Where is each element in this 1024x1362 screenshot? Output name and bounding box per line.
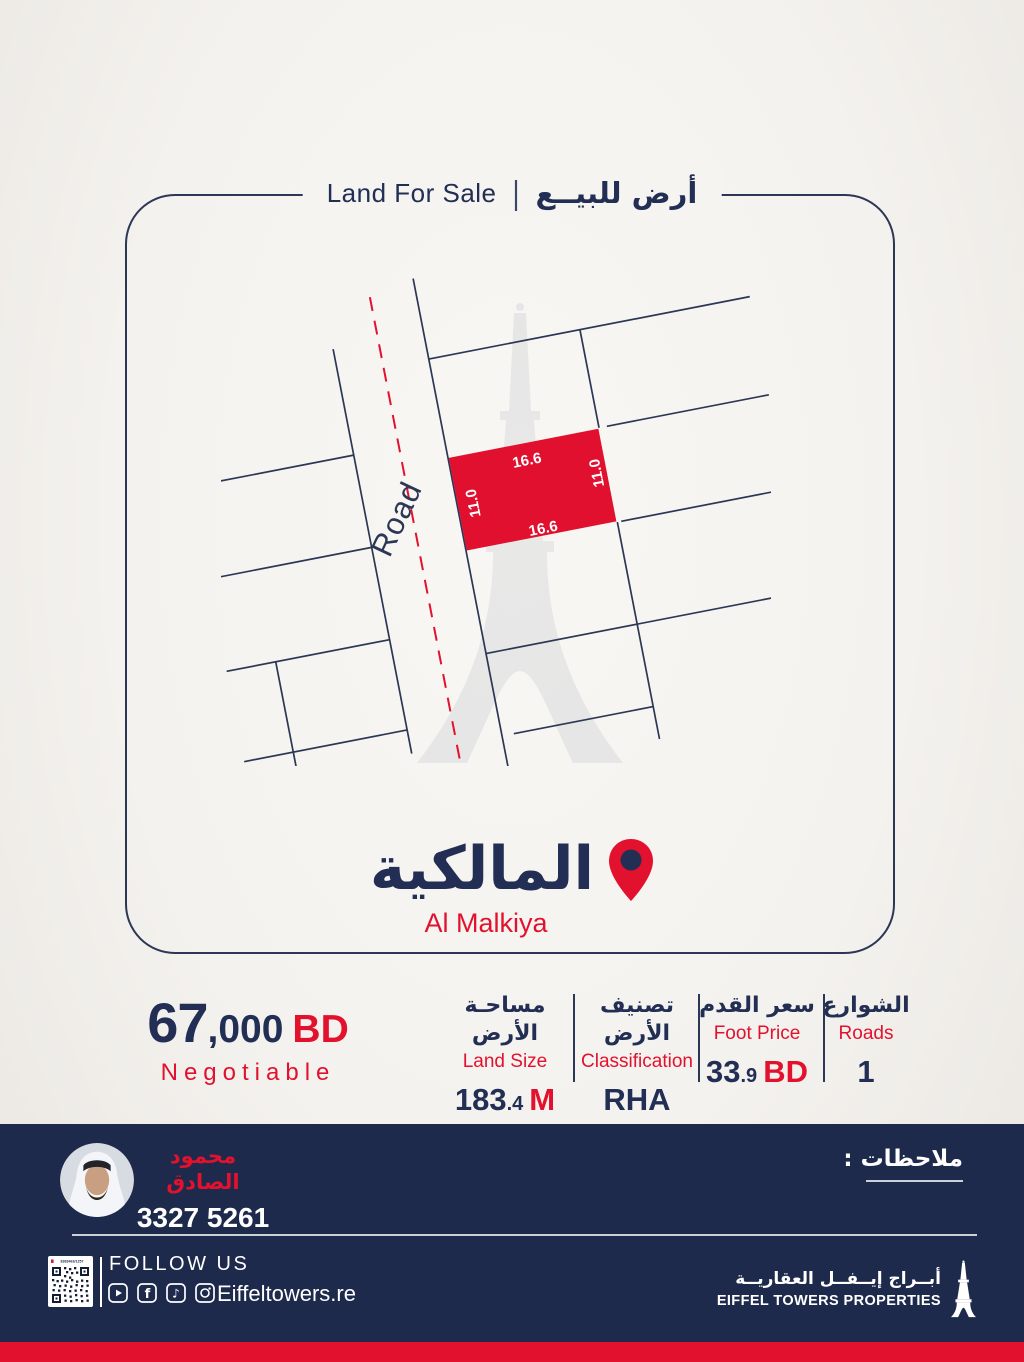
- page-title: Land For Sale | أرض للبيــع: [303, 170, 722, 216]
- title-arabic: أرض للبيــع: [536, 176, 698, 210]
- stat-value: 1: [821, 1055, 911, 1093]
- stat-foot-price: سعر القدم Foot Price 33.9BD: [697, 992, 817, 1093]
- brand-name-english: EIFFEL TOWERS PROPERTIES: [717, 1293, 941, 1309]
- stat-label-arabic: الشوارع: [821, 992, 911, 1020]
- agent-photo: [60, 1143, 134, 1217]
- location-row: المالكية: [0, 834, 1024, 904]
- bottom-red-strip: [0, 1342, 1024, 1362]
- stat-value: 33.9BD: [697, 1055, 817, 1093]
- price-amount: 67: [147, 990, 207, 1055]
- title-english: Land For Sale: [327, 178, 497, 209]
- stat-land-size: مساحـة الأرض Land Size 183.4M: [435, 992, 575, 1121]
- location-name-arabic: المالكية: [370, 834, 594, 904]
- price-line: 67 ,000 BD: [140, 990, 356, 1055]
- social-icons: f ♪: [108, 1283, 215, 1303]
- stat-roads: الشوارع Roads 1: [821, 992, 911, 1093]
- negotiable-label: Negotiable: [140, 1059, 356, 1087]
- website-link[interactable]: Eiffeltowers.re: [217, 1281, 356, 1307]
- stat-label-english: Foot Price: [697, 1023, 817, 1045]
- agent-phone[interactable]: 3327 5261: [134, 1202, 272, 1234]
- notes-label: ملاحظات :: [843, 1146, 963, 1172]
- eiffel-tower-icon: [950, 1260, 977, 1318]
- brand-logo: أبــراج إيــفــل العقاريــة EIFFEL TOWER…: [717, 1260, 977, 1318]
- notes-block: ملاحظات :: [843, 1146, 963, 1182]
- stat-label-arabic: مساحـة الأرض: [435, 992, 575, 1048]
- stat-value: RHA: [577, 1083, 697, 1121]
- location-name-english: Al Malkiya: [0, 908, 998, 939]
- title-separator: |: [513, 174, 520, 213]
- follow-us-label: FOLLOW US: [109, 1253, 249, 1276]
- stat-value: 183.4M: [435, 1083, 575, 1121]
- instagram-icon[interactable]: [195, 1283, 215, 1303]
- facebook-icon[interactable]: f: [137, 1283, 157, 1303]
- stat-label-english: Classification: [577, 1051, 697, 1073]
- contact-band: محمود الصادق 3327 5261 ملاحظات : 8383463…: [0, 1124, 1024, 1362]
- agent-info: محمود الصادق 3327 5261: [134, 1143, 272, 1234]
- svg-text:f: f: [145, 1287, 151, 1302]
- plot-map: 16.6 16.6 11.0 11.0: [221, 261, 771, 766]
- band-separator-line: [72, 1234, 977, 1236]
- price-thousands: ,000: [208, 1008, 284, 1052]
- price-currency: BD: [292, 1008, 348, 1052]
- brand-text: أبــراج إيــفــل العقاريــة EIFFEL TOWER…: [717, 1269, 941, 1309]
- location-pin-icon: [608, 838, 654, 902]
- stat-divider: [573, 994, 575, 1082]
- youtube-icon[interactable]: [108, 1283, 128, 1303]
- stat-label-arabic: تصنيف الأرض: [577, 992, 697, 1048]
- agent-name: محمود الصادق: [134, 1143, 272, 1195]
- stat-classification: تصنيف الأرض Classification RHA: [577, 992, 697, 1121]
- notes-underline: [866, 1180, 963, 1182]
- flyer-canvas: Land For Sale | أرض للبيــع: [0, 0, 1024, 1362]
- footer-divider-line: [100, 1257, 102, 1307]
- stat-label-arabic: سعر القدم: [697, 992, 817, 1020]
- stat-label-english: Land Size: [435, 1051, 575, 1073]
- brand-name-arabic: أبــراج إيــفــل العقاريــة: [717, 1269, 941, 1290]
- svg-text:♪: ♪: [172, 1287, 180, 1301]
- price-block: 67 ,000 BD Negotiable: [140, 990, 356, 1087]
- stat-label-english: Roads: [821, 1023, 911, 1045]
- qr-code[interactable]: 8383463/1257: [48, 1256, 93, 1307]
- tiktok-icon[interactable]: ♪: [166, 1283, 186, 1303]
- qr-caption: 8383463/1257: [61, 1260, 84, 1264]
- agent-avatar: [60, 1143, 134, 1217]
